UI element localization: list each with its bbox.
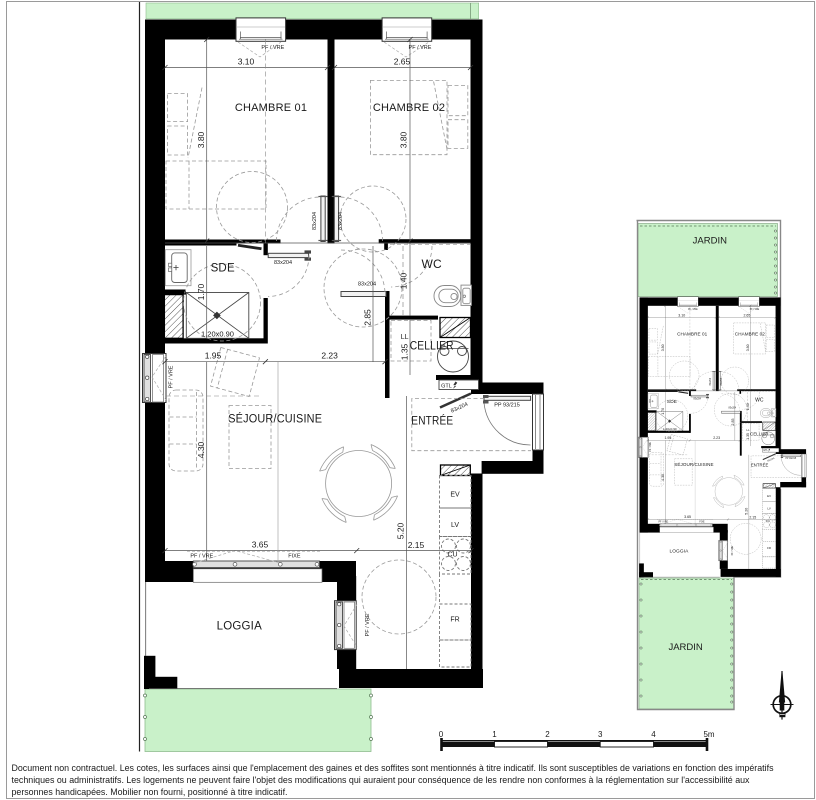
svg-text:GTL: GTL [441, 383, 452, 389]
svg-text:83x204: 83x204 [338, 212, 344, 230]
svg-text:2.23: 2.23 [321, 351, 338, 361]
svg-text:PF / VRE: PF / VRE [365, 613, 371, 636]
svg-text:5m: 5m [703, 730, 714, 739]
svg-text:2.65: 2.65 [394, 57, 411, 67]
svg-text:CHAMBRE 01: CHAMBRE 01 [235, 102, 307, 114]
svg-text:EV: EV [450, 492, 460, 499]
svg-text:3: 3 [598, 730, 603, 739]
svg-text:3.10: 3.10 [238, 57, 255, 67]
svg-text:techniques ou administratifs.: techniques ou administratifs. Les logeme… [12, 775, 750, 785]
svg-text:CELLIER: CELLIER [410, 341, 454, 353]
svg-text:FR: FR [450, 617, 459, 624]
svg-text:1: 1 [492, 730, 497, 739]
svg-text:83x204: 83x204 [312, 212, 318, 230]
svg-text:4: 4 [651, 730, 656, 739]
svg-text:CU: CU [447, 552, 457, 559]
svg-text:4.30: 4.30 [196, 441, 206, 458]
svg-text:JARDIN: JARDIN [668, 642, 702, 653]
svg-text:PF / VRE: PF / VRE [190, 554, 213, 560]
svg-text:3.80: 3.80 [196, 131, 206, 148]
svg-text:83x204: 83x204 [358, 282, 376, 288]
svg-text:LOGGIA: LOGGIA [217, 621, 262, 633]
svg-text:FIXE: FIXE [288, 554, 301, 560]
svg-text:PP 93/215: PP 93/215 [494, 403, 520, 409]
svg-text:personnes handicapées. Mobilie: personnes handicapées. Mobilier non four… [12, 787, 288, 797]
svg-text:SDE: SDE [211, 263, 235, 275]
svg-text:83x204: 83x204 [274, 260, 292, 266]
svg-text:1.70: 1.70 [196, 283, 206, 300]
svg-text:3.80: 3.80 [399, 131, 409, 148]
svg-text:CHAMBRE 02: CHAMBRE 02 [373, 102, 445, 114]
svg-text:2: 2 [545, 730, 550, 739]
svg-text:LV: LV [451, 522, 459, 529]
svg-text:PF / VRE: PF / VRE [409, 45, 432, 51]
svg-text:2.15: 2.15 [408, 540, 425, 550]
svg-text:1.40: 1.40 [399, 272, 409, 289]
svg-text:LL: LL [401, 334, 409, 341]
svg-text:Document non contractuel. Les: Document non contractuel. Les cotes, les… [12, 763, 774, 773]
svg-text:1.20x0.90: 1.20x0.90 [201, 330, 234, 339]
svg-text:2.85: 2.85 [363, 309, 373, 326]
svg-text:5.20: 5.20 [396, 522, 406, 539]
svg-text:ENTRÉE: ENTRÉE [411, 415, 453, 428]
svg-text:0: 0 [439, 730, 444, 739]
svg-text:1.95: 1.95 [205, 351, 222, 361]
svg-text:83x204: 83x204 [450, 402, 469, 415]
svg-text:3.65: 3.65 [252, 540, 269, 550]
svg-text:WC: WC [421, 257, 442, 271]
svg-text:PF / VRE: PF / VRE [261, 45, 284, 51]
svg-text:JARDIN: JARDIN [693, 236, 727, 247]
svg-text:1.35: 1.35 [400, 343, 410, 360]
svg-text:PF / VRE: PF / VRE [169, 365, 175, 388]
svg-text:SÉJOUR/CUISINE: SÉJOUR/CUISINE [228, 413, 322, 426]
